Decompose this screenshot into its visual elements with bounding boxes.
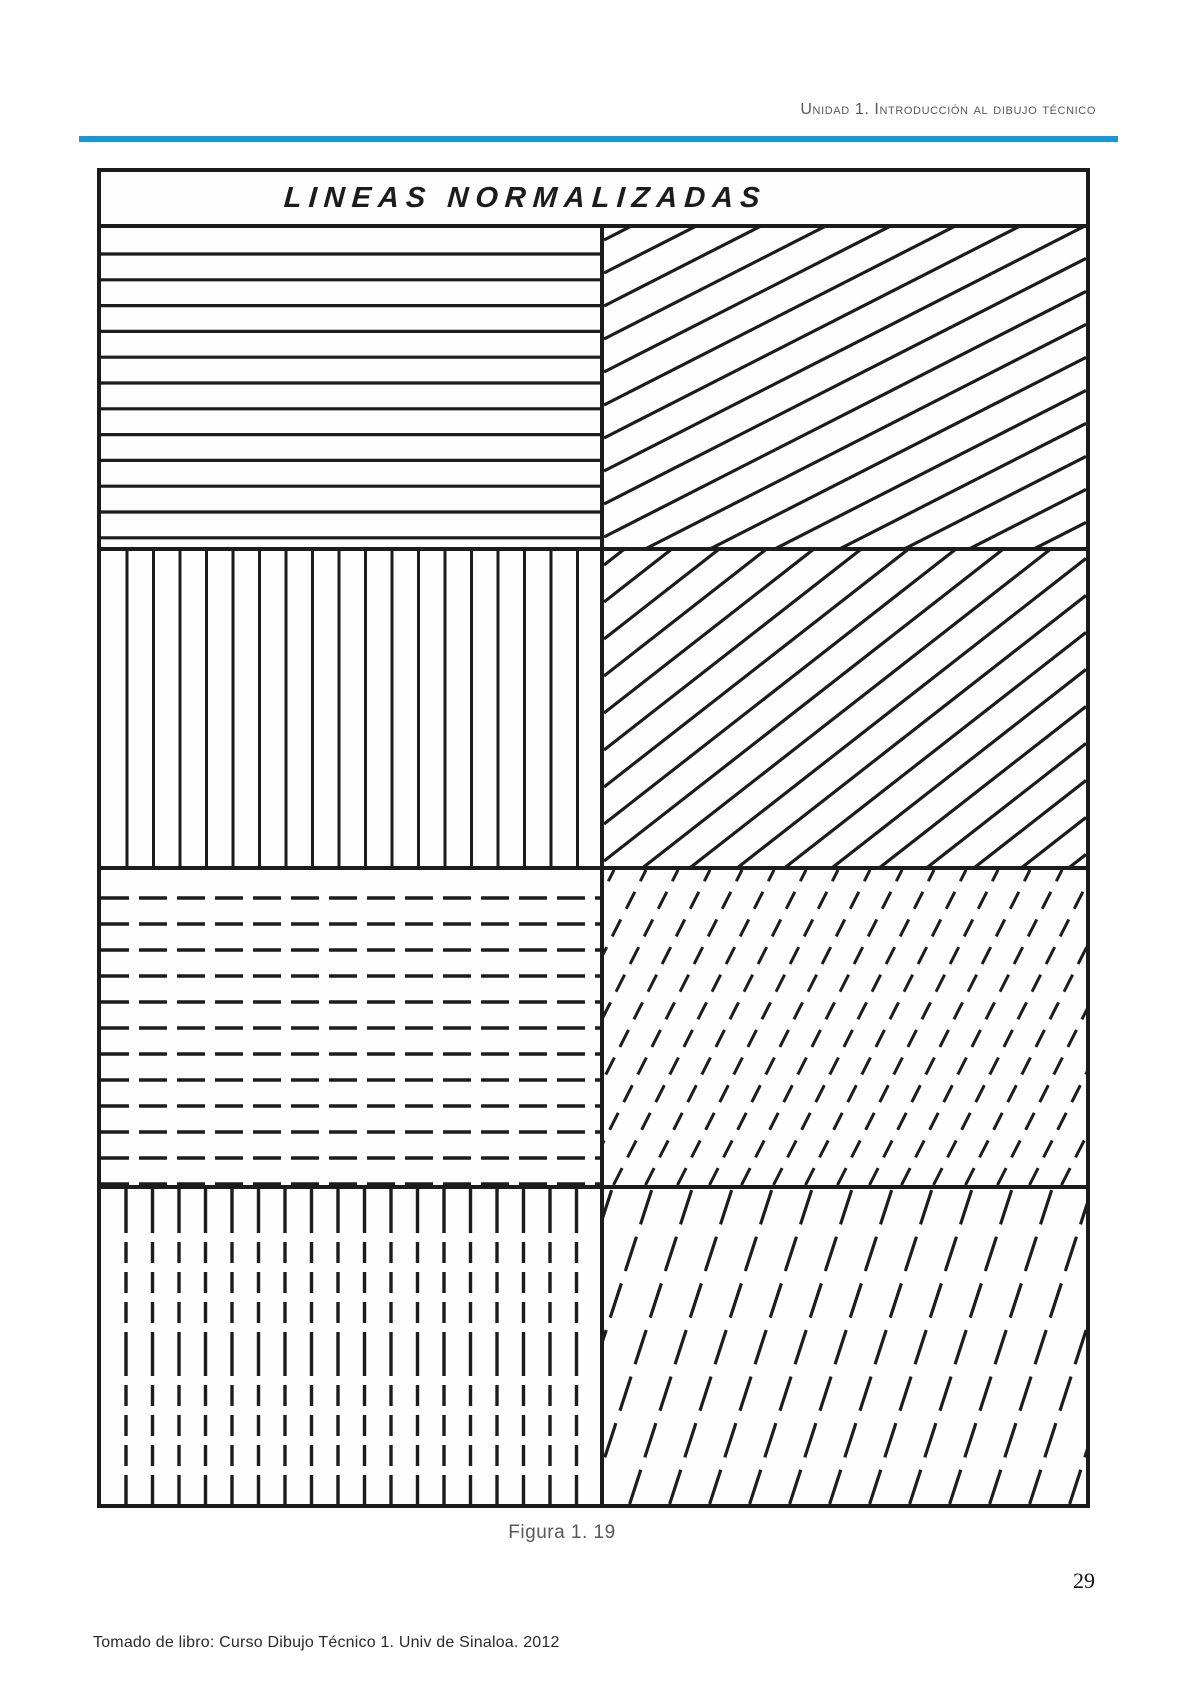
panel-horizontal-continuous-lines bbox=[101, 228, 604, 547]
horizontal-lines-pattern bbox=[101, 228, 600, 547]
figure-title: LINEAS NORMALIZADAS bbox=[283, 182, 768, 215]
diagonal-lines-pattern bbox=[604, 551, 1086, 866]
pattern-grid bbox=[101, 228, 1086, 1504]
figure-title-box: LINEAS NORMALIZADAS bbox=[101, 172, 1086, 228]
panel-diagonal-low-angle-continuous-lines bbox=[604, 228, 1086, 547]
horizontal-dashed-pattern bbox=[101, 870, 600, 1185]
vertical-lines-pattern bbox=[101, 551, 600, 866]
diagonal-lines-pattern bbox=[604, 228, 1086, 547]
header-rule bbox=[79, 136, 1118, 142]
panel-horizontal-dashed-lines bbox=[101, 866, 604, 1185]
diagonal-dashed-pattern bbox=[604, 870, 1086, 1185]
diagonal-long-dash-pattern bbox=[604, 1189, 1086, 1504]
panel-vertical-continuous-lines bbox=[101, 547, 604, 866]
panel-diagonal-very-steep-long-dash-lines bbox=[604, 1185, 1086, 1504]
page-number: 29 bbox=[1073, 1568, 1095, 1594]
panel-diagonal-medium-angle-continuous-lines bbox=[604, 547, 1086, 866]
source-note: Tomado de libro: Curso Dibujo Técnico 1.… bbox=[93, 1634, 560, 1652]
panel-diagonal-steep-dashed-lines bbox=[604, 866, 1086, 1185]
figure-lineas-normalizadas: LINEAS NORMALIZADAS bbox=[97, 168, 1090, 1508]
vertical-dashed-pattern bbox=[101, 1189, 600, 1504]
figure-caption: Figura 1. 19 bbox=[0, 1522, 1124, 1544]
panel-vertical-dashed-lines bbox=[101, 1185, 604, 1504]
header-title: Unidad 1. Introducción al dibujo técnico bbox=[800, 101, 1096, 119]
